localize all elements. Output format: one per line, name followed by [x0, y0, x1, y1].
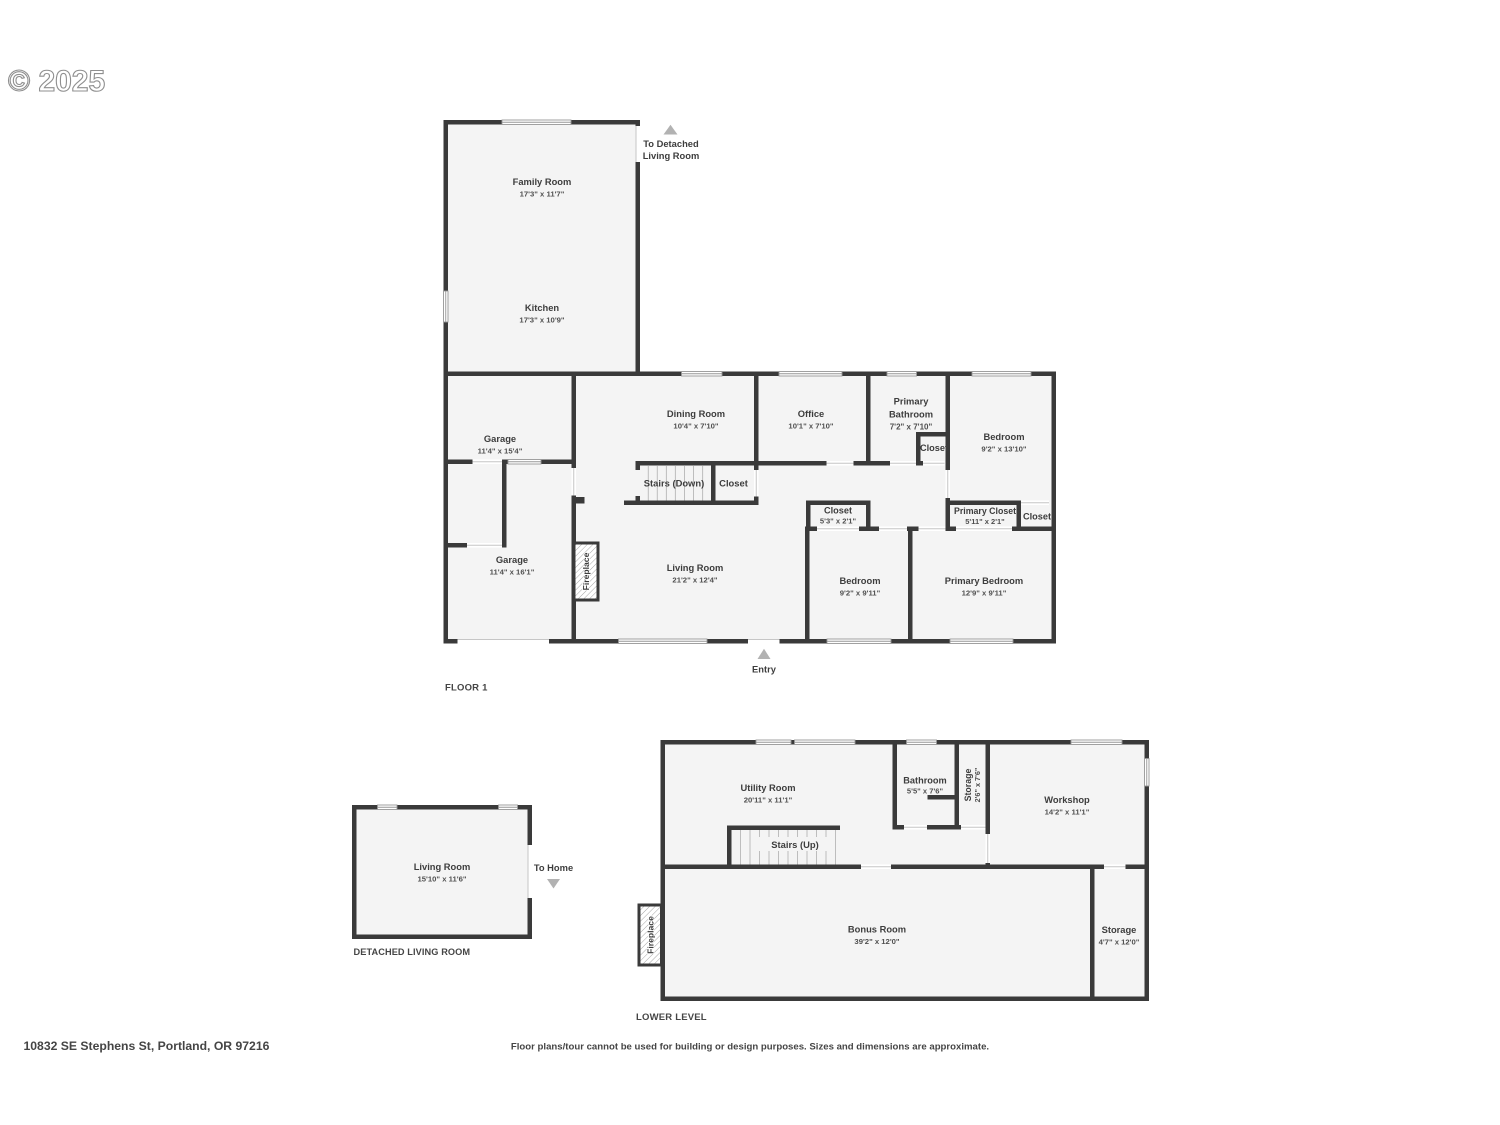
svg-text:Bathroom: Bathroom	[889, 410, 933, 420]
svg-text:17'3" x 11'7": 17'3" x 11'7"	[520, 189, 565, 198]
svg-text:© 2025: © 2025	[8, 65, 105, 98]
svg-text:11'4" x 16'1": 11'4" x 16'1"	[490, 567, 535, 576]
svg-text:Closet: Closet	[920, 443, 948, 453]
svg-text:Living Room: Living Room	[414, 862, 471, 872]
svg-text:15'10" x 11'6": 15'10" x 11'6"	[418, 874, 467, 883]
svg-text:FLOOR 1: FLOOR 1	[445, 683, 488, 694]
svg-text:Garage: Garage	[496, 555, 528, 565]
svg-text:Closet: Closet	[1023, 512, 1051, 522]
svg-text:LOWER LEVEL: LOWER LEVEL	[636, 1012, 707, 1023]
svg-text:Stairs (Down): Stairs (Down)	[644, 478, 704, 489]
svg-text:Entry: Entry	[752, 665, 777, 675]
svg-text:Bedroom: Bedroom	[983, 432, 1024, 442]
svg-text:Fireplace: Fireplace	[645, 916, 655, 954]
svg-text:Kitchen: Kitchen	[525, 303, 560, 313]
svg-text:9'2" x 13'10": 9'2" x 13'10"	[981, 444, 1027, 453]
svg-text:Primary: Primary	[894, 397, 930, 407]
svg-text:Garage: Garage	[484, 434, 516, 444]
svg-text:Closet: Closet	[719, 478, 748, 489]
svg-text:Closet: Closet	[824, 506, 852, 516]
svg-text:10'4" x 7'10": 10'4" x 7'10"	[673, 421, 719, 430]
svg-text:Stairs (Up): Stairs (Up)	[771, 839, 818, 850]
svg-text:Primary Closet: Primary Closet	[954, 506, 1016, 516]
svg-text:10832 SE Stephens St, Portland: 10832 SE Stephens St, Portland, OR 97216	[24, 1039, 270, 1053]
svg-text:Bedroom: Bedroom	[839, 576, 880, 586]
svg-text:4'7" x 12'0": 4'7" x 12'0"	[1099, 937, 1140, 946]
svg-text:39'2" x 12'0": 39'2" x 12'0"	[854, 937, 900, 946]
svg-text:Storage: Storage	[1102, 925, 1137, 935]
svg-text:Utility Room: Utility Room	[740, 783, 795, 793]
svg-text:17'3" x 10'9": 17'3" x 10'9"	[519, 315, 565, 324]
svg-text:DETACHED LIVING ROOM: DETACHED LIVING ROOM	[354, 947, 471, 957]
svg-text:Dining Room: Dining Room	[667, 409, 725, 419]
svg-text:9'2" x 9'11": 9'2" x 9'11"	[840, 588, 881, 597]
svg-text:Storage: Storage	[963, 769, 973, 802]
svg-text:Primary Bedroom: Primary Bedroom	[945, 576, 1023, 586]
svg-text:20'11" x 11'1": 20'11" x 11'1"	[744, 795, 793, 804]
svg-text:10'1" x 7'10": 10'1" x 7'10"	[788, 421, 834, 430]
svg-text:Living Room: Living Room	[667, 563, 724, 573]
svg-text:11'4" x 15'4": 11'4" x 15'4"	[478, 446, 523, 455]
svg-text:To Detached: To Detached	[643, 139, 699, 149]
svg-text:5'5" x 7'6": 5'5" x 7'6"	[907, 787, 944, 796]
svg-text:2'6" x 7'6": 2'6" x 7'6"	[973, 768, 982, 803]
svg-text:Bonus Room: Bonus Room	[848, 925, 906, 935]
svg-text:5'11" x 2'1": 5'11" x 2'1"	[965, 517, 1005, 526]
svg-text:Workshop: Workshop	[1044, 795, 1090, 805]
svg-text:5'3" x 2'1": 5'3" x 2'1"	[820, 517, 857, 526]
svg-text:To Home: To Home	[534, 863, 573, 873]
svg-text:12'9" x 9'11": 12'9" x 9'11"	[962, 588, 1007, 597]
svg-text:Living Room: Living Room	[643, 151, 700, 161]
svg-text:7'2" x 7'10": 7'2" x 7'10"	[890, 423, 933, 432]
svg-text:Family Room: Family Room	[513, 177, 572, 187]
svg-text:Floor plans/tour cannot be use: Floor plans/tour cannot be used for buil…	[511, 1042, 989, 1053]
svg-text:Office: Office	[798, 409, 824, 419]
svg-text:21'2" x 12'4": 21'2" x 12'4"	[672, 575, 718, 584]
svg-text:Bathroom: Bathroom	[903, 776, 946, 786]
svg-text:14'2" x 11'1": 14'2" x 11'1"	[1045, 807, 1090, 816]
svg-text:Fireplace: Fireplace	[581, 552, 591, 590]
